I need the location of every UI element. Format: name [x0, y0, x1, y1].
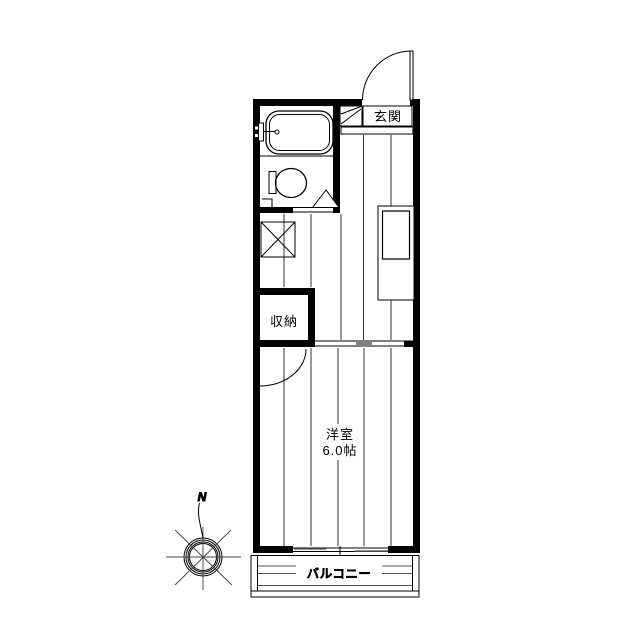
western-room: 洋室 6.0帖	[253, 348, 391, 546]
wall-bottom-right	[388, 546, 420, 553]
appliance-space-crossed-box	[261, 222, 295, 257]
faucet-knob	[255, 134, 259, 138]
balcony-label: バルコニー	[307, 567, 372, 581]
kitchen-sink	[383, 211, 410, 259]
storage-wall-bottom	[253, 340, 315, 347]
bath-wall-right	[333, 99, 340, 213]
balcony: バルコニー	[251, 556, 419, 598]
entrance: 玄関	[340, 51, 413, 134]
unit-bath	[253, 99, 340, 213]
wall-bottom-left	[253, 546, 293, 553]
entrance-door-leaf	[410, 51, 413, 100]
compass-rose-icon: N	[166, 490, 241, 590]
compass-north-label: N	[198, 490, 207, 504]
partition-wall-post	[404, 341, 413, 347]
storage-wall-right	[308, 288, 315, 347]
toilet	[262, 169, 307, 208]
floor-plan-drawing: 玄関 収納	[0, 0, 640, 640]
compass-spokes	[166, 527, 241, 590]
balcony-window	[293, 546, 388, 556]
room-label: 洋室	[326, 427, 354, 442]
partition-wall	[315, 341, 413, 347]
faucet-spout-tip	[275, 130, 279, 134]
entrance-door-arc	[363, 51, 412, 100]
wall-left	[253, 99, 260, 553]
storage-wall-top	[253, 288, 315, 295]
entrance-label: 玄関	[374, 109, 402, 124]
window-sash-right	[355, 550, 388, 552]
floor-plan-page: 玄関 収納	[0, 0, 640, 640]
partition-door-panel	[356, 342, 372, 345]
toilet-corner-line	[262, 199, 272, 207]
window-sash-left	[294, 549, 326, 551]
toilet-bowl	[276, 169, 307, 198]
bath-wall-bottom	[253, 207, 293, 213]
wall-right	[413, 99, 420, 553]
room-door-arc	[259, 349, 306, 386]
bathtub-faucet	[255, 123, 280, 141]
storage-label: 収納	[270, 314, 298, 329]
faucet-knob	[255, 126, 259, 130]
compass-north-pointer	[198, 503, 203, 538]
wall-top	[253, 99, 362, 106]
storage-closet: 収納	[253, 288, 315, 347]
faucet-body	[259, 123, 264, 141]
room-area-label: 6.0帖	[322, 443, 357, 458]
entrance-step-edge	[341, 127, 413, 134]
kitchen-counter	[378, 206, 414, 300]
